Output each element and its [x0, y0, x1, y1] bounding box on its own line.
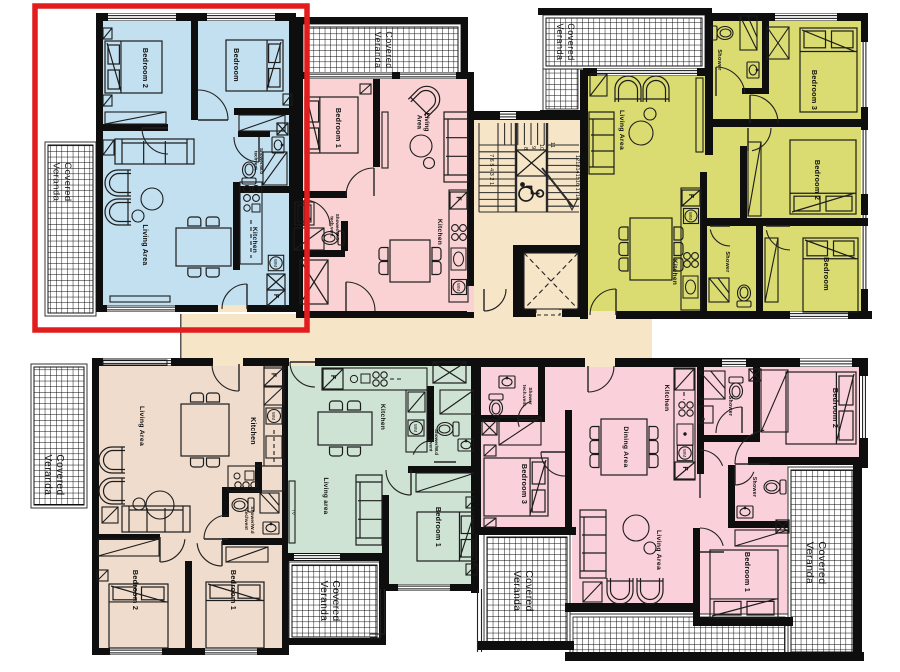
svg-text:WM: WM: [271, 412, 276, 420]
svg-text:TV: TV: [291, 509, 296, 516]
svg-text:Living area: Living area: [322, 477, 329, 514]
svg-text:CoveredVeranda: CoveredVeranda: [318, 580, 341, 621]
svg-text:CoveredVeranda: CoveredVeranda: [511, 570, 534, 611]
svg-text:CoveredVeranda: CoveredVeranda: [42, 454, 65, 495]
svg-text:Bedroom 2: Bedroom 2: [131, 570, 140, 610]
svg-text:Bedroom 3: Bedroom 3: [520, 464, 529, 504]
svg-text:Living Area: Living Area: [618, 110, 625, 150]
svg-text:LivingArea: LivingArea: [416, 113, 430, 132]
svg-text:7 6 5 4 3 2 1: 7 6 5 4 3 2 1: [488, 154, 494, 185]
svg-text:Dining Area: Dining Area: [622, 426, 629, 467]
svg-text:WM: WM: [456, 283, 461, 291]
svg-text:Bedroom: Bedroom: [232, 48, 241, 82]
svg-text:Bedroom 2: Bedroom 2: [831, 388, 840, 428]
svg-text:Shower/W.dtechvent: Shower/W.dtechvent: [428, 429, 439, 455]
svg-text:F: F: [681, 466, 688, 471]
svg-text:Kitchen: Kitchen: [249, 417, 256, 445]
svg-text:CoveredVeranda: CoveredVeranda: [51, 162, 74, 201]
svg-text:WM: WM: [273, 259, 278, 267]
svg-text:Bedroom 1: Bedroom 1: [434, 507, 443, 547]
svg-text:8: 8: [522, 147, 528, 150]
svg-text:Bedroom 1: Bedroom 1: [334, 108, 343, 148]
svg-text:Kitchen: Kitchen: [251, 227, 258, 253]
svg-text:F: F: [687, 194, 694, 199]
svg-text:11: 11: [549, 142, 555, 148]
svg-text:1213141516 1718: 1213141516 1718: [574, 155, 580, 200]
svg-text:Kitchen: Kitchen: [436, 219, 443, 245]
svg-text:Kitchen: Kitchen: [663, 384, 670, 411]
svg-text:Bedroom: Bedroom: [822, 257, 831, 291]
svg-text:F: F: [329, 375, 336, 380]
svg-text:Shower/W.dtechvent: Shower/W.dtechvent: [243, 506, 255, 533]
svg-text:9: 9: [530, 146, 536, 149]
svg-text:Bedroom 2: Bedroom 2: [141, 48, 150, 88]
svg-text:Shower: Shower: [727, 396, 733, 417]
svg-text:Bedroom 1: Bedroom 1: [743, 552, 752, 592]
svg-text:WM: WM: [413, 424, 418, 432]
svg-text:CoveredVeranda: CoveredVeranda: [373, 31, 394, 69]
svg-text:WM: WM: [688, 212, 693, 220]
svg-text:F: F: [272, 294, 279, 299]
svg-text:Shower/W.Ctech.vent.: Shower/W.Ctech.vent.: [329, 214, 340, 241]
svg-text:Living Area: Living Area: [141, 224, 148, 265]
svg-text:Bedroom 1: Bedroom 1: [229, 570, 238, 610]
svg-text:Living Area: Living Area: [138, 406, 145, 446]
svg-text:Bedroom 2: Bedroom 2: [813, 160, 822, 200]
svg-text:CoveredVeranda: CoveredVeranda: [555, 23, 576, 61]
svg-text:F: F: [270, 373, 277, 378]
svg-text:CoveredVeranda: CoveredVeranda: [804, 541, 829, 584]
svg-text:Kitchen: Kitchen: [379, 404, 386, 430]
svg-text:10: 10: [538, 144, 544, 150]
svg-text:F: F: [455, 196, 462, 201]
svg-text:Bedroom 3: Bedroom 3: [810, 70, 819, 110]
svg-text:Shower: Shower: [724, 251, 730, 273]
svg-text:WM: WM: [682, 449, 687, 457]
svg-text:Shower: Shower: [751, 477, 757, 498]
svg-text:Living Area: Living Area: [655, 530, 662, 570]
